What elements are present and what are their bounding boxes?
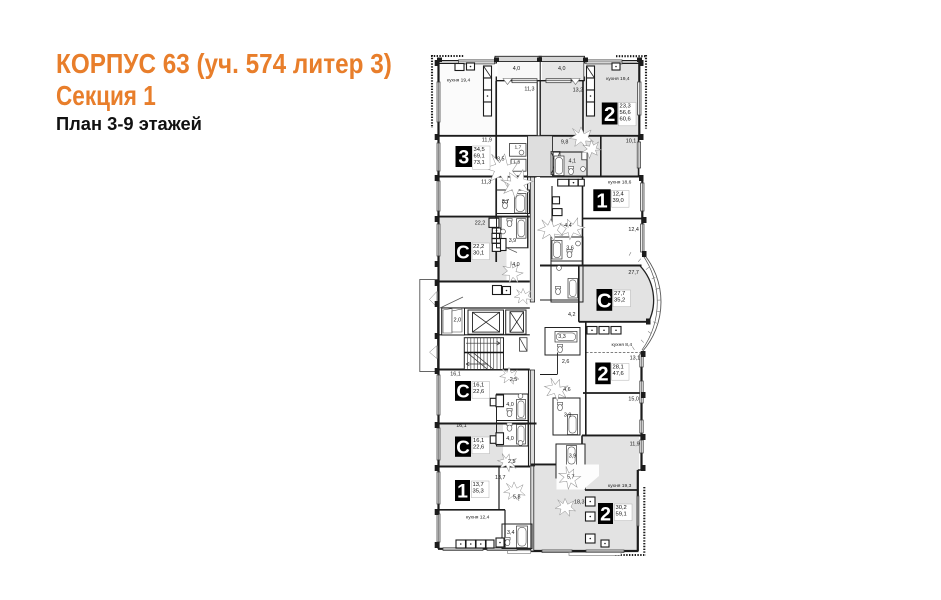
svg-text:2: 2 <box>604 103 615 126</box>
svg-text:кухня 19,4: кухня 19,4 <box>606 76 630 82</box>
svg-text:3,6: 3,6 <box>566 245 574 251</box>
svg-text:С: С <box>456 242 469 263</box>
svg-text:3,4: 3,4 <box>507 530 515 536</box>
svg-text:9,8: 9,8 <box>561 139 569 145</box>
svg-text:47,6: 47,6 <box>613 371 624 377</box>
svg-text:34,5: 34,5 <box>474 147 485 153</box>
svg-text:28,1: 28,1 <box>613 365 624 371</box>
svg-text:2,5: 2,5 <box>508 459 516 465</box>
svg-text:12,4: 12,4 <box>613 192 625 198</box>
svg-text:4,4: 4,4 <box>564 223 572 229</box>
svg-text:4,6: 4,6 <box>563 387 571 393</box>
svg-text:3,3: 3,3 <box>558 334 566 340</box>
svg-text:5,7: 5,7 <box>567 475 575 481</box>
svg-text:4,0: 4,0 <box>558 66 566 72</box>
svg-text:11,9: 11,9 <box>630 441 640 447</box>
svg-text:1,7: 1,7 <box>515 144 522 150</box>
svg-text:кухня 18,6: кухня 18,6 <box>608 180 632 186</box>
svg-text:3,7: 3,7 <box>502 199 510 205</box>
svg-text:35,3: 35,3 <box>473 489 484 495</box>
svg-text:11,9: 11,9 <box>482 137 492 143</box>
svg-text:18,3: 18,3 <box>574 500 585 506</box>
svg-text:С: С <box>456 436 470 457</box>
svg-text:2,0: 2,0 <box>454 318 462 324</box>
svg-text:73,1: 73,1 <box>474 160 485 166</box>
svg-text:27,7: 27,7 <box>614 291 625 297</box>
svg-text:4,0: 4,0 <box>506 436 514 442</box>
svg-text:27,7: 27,7 <box>628 270 639 276</box>
svg-text:1: 1 <box>457 481 468 503</box>
svg-text:22,6: 22,6 <box>473 389 484 395</box>
svg-text:59,1: 59,1 <box>616 512 627 518</box>
svg-text:10,1: 10,1 <box>626 139 637 145</box>
svg-text:8,5: 8,5 <box>497 157 505 163</box>
svg-text:30,1: 30,1 <box>473 251 484 257</box>
svg-text:4,1: 4,1 <box>569 159 577 165</box>
svg-text:кухня 19,4: кухня 19,4 <box>447 78 471 84</box>
svg-text:4,0: 4,0 <box>506 402 514 408</box>
svg-text:5,8: 5,8 <box>513 495 521 501</box>
svg-text:23,3: 23,3 <box>620 104 631 110</box>
svg-text:кухня 19,3: кухня 19,3 <box>608 483 632 489</box>
svg-text:39,0: 39,0 <box>613 198 624 204</box>
svg-text:30,2: 30,2 <box>616 505 627 511</box>
svg-text:4,2: 4,2 <box>568 312 576 318</box>
svg-text:56,6: 56,6 <box>620 110 631 116</box>
svg-text:16,1: 16,1 <box>473 383 484 389</box>
svg-text:1,3: 1,3 <box>513 160 520 166</box>
svg-text:1: 1 <box>596 191 607 213</box>
svg-text:13,2: 13,2 <box>573 88 584 94</box>
svg-text:22,6: 22,6 <box>473 445 484 451</box>
svg-text:кухня 12,4: кухня 12,4 <box>466 515 490 521</box>
svg-text:3,9: 3,9 <box>564 412 572 418</box>
svg-text:12,4: 12,4 <box>628 227 639 233</box>
svg-text:11,3: 11,3 <box>481 179 491 185</box>
svg-text:4,0: 4,0 <box>513 66 521 72</box>
svg-text:2: 2 <box>600 504 611 526</box>
svg-text:13,7: 13,7 <box>473 482 484 488</box>
svg-text:кухня 8,4: кухня 8,4 <box>612 342 633 348</box>
svg-text:16,1: 16,1 <box>450 371 461 377</box>
svg-text:3,9: 3,9 <box>569 453 577 459</box>
svg-text:2,5: 2,5 <box>510 377 518 383</box>
svg-text:22,2: 22,2 <box>473 244 484 250</box>
svg-text:С: С <box>456 380 469 401</box>
svg-text:60,6: 60,6 <box>620 117 631 123</box>
svg-text:С: С <box>597 290 612 312</box>
svg-text:69,1: 69,1 <box>474 154 485 160</box>
svg-text:4,0: 4,0 <box>512 262 520 268</box>
svg-text:2,6: 2,6 <box>562 359 570 365</box>
svg-text:11,3: 11,3 <box>524 86 534 92</box>
svg-text:13,7: 13,7 <box>495 475 506 481</box>
svg-text:3,9: 3,9 <box>509 238 517 244</box>
svg-text:2: 2 <box>597 364 608 386</box>
svg-text:16,1: 16,1 <box>456 423 467 429</box>
svg-text:15,0: 15,0 <box>628 397 639 403</box>
svg-text:22,2: 22,2 <box>475 221 486 227</box>
svg-text:13,1: 13,1 <box>630 356 641 362</box>
svg-text:16,1: 16,1 <box>473 438 484 444</box>
svg-text:3: 3 <box>458 147 469 169</box>
svg-text:35,2: 35,2 <box>614 298 625 304</box>
